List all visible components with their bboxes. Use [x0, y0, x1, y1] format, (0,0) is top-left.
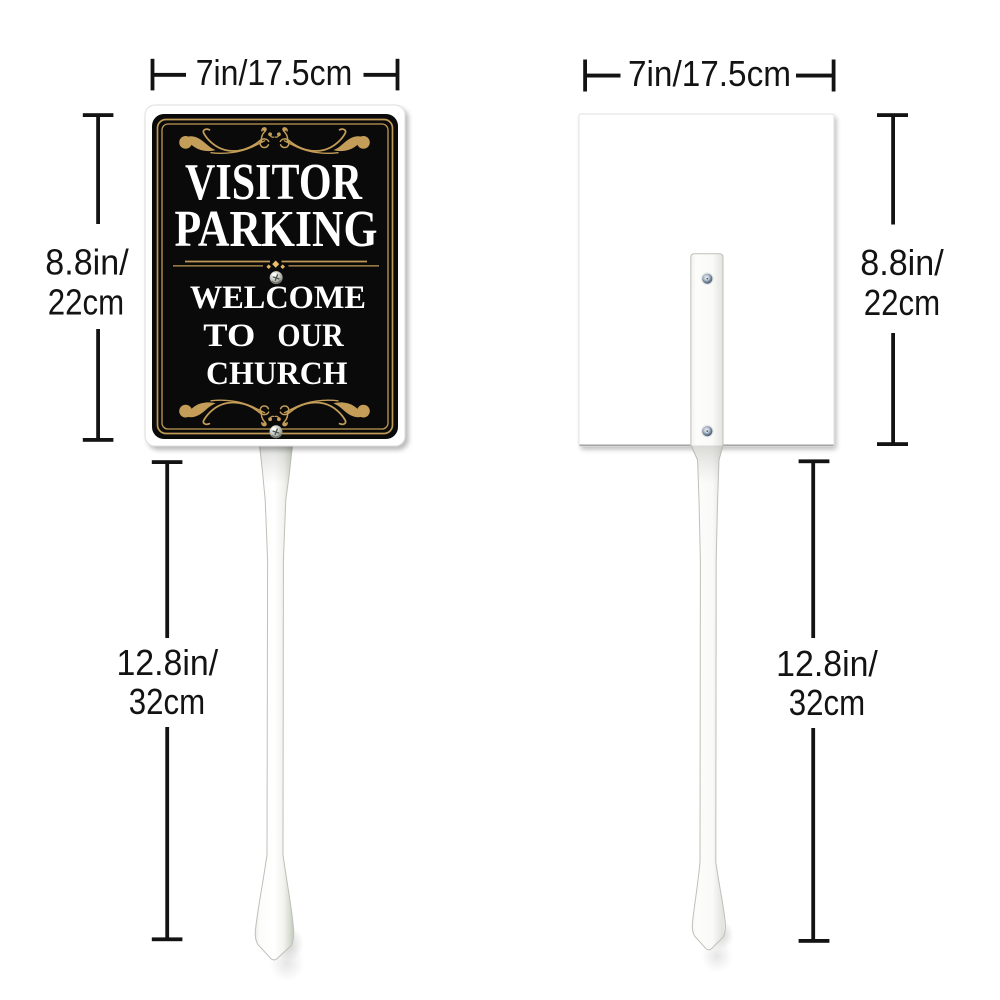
svg-text:12.8in/: 12.8in/ — [116, 642, 218, 683]
svg-text:12.8in/: 12.8in/ — [776, 643, 878, 684]
svg-text:7in/17.5cm: 7in/17.5cm — [628, 53, 791, 94]
svg-text:WELCOME: WELCOME — [190, 280, 366, 316]
svg-text:7in/17.5cm: 7in/17.5cm — [196, 52, 353, 93]
svg-text:8.8in/: 8.8in/ — [45, 242, 128, 283]
svg-text:TO: TO — [203, 318, 255, 354]
svg-text:32cm: 32cm — [789, 682, 865, 723]
svg-text:OUR: OUR — [277, 318, 344, 354]
svg-text:CHURCH: CHURCH — [206, 356, 348, 392]
svg-text:22cm: 22cm — [864, 282, 940, 323]
svg-text:8.8in/: 8.8in/ — [860, 242, 943, 283]
svg-text:22cm: 22cm — [48, 281, 124, 322]
svg-text:PARKING: PARKING — [175, 201, 378, 258]
svg-text:32cm: 32cm — [129, 681, 205, 722]
